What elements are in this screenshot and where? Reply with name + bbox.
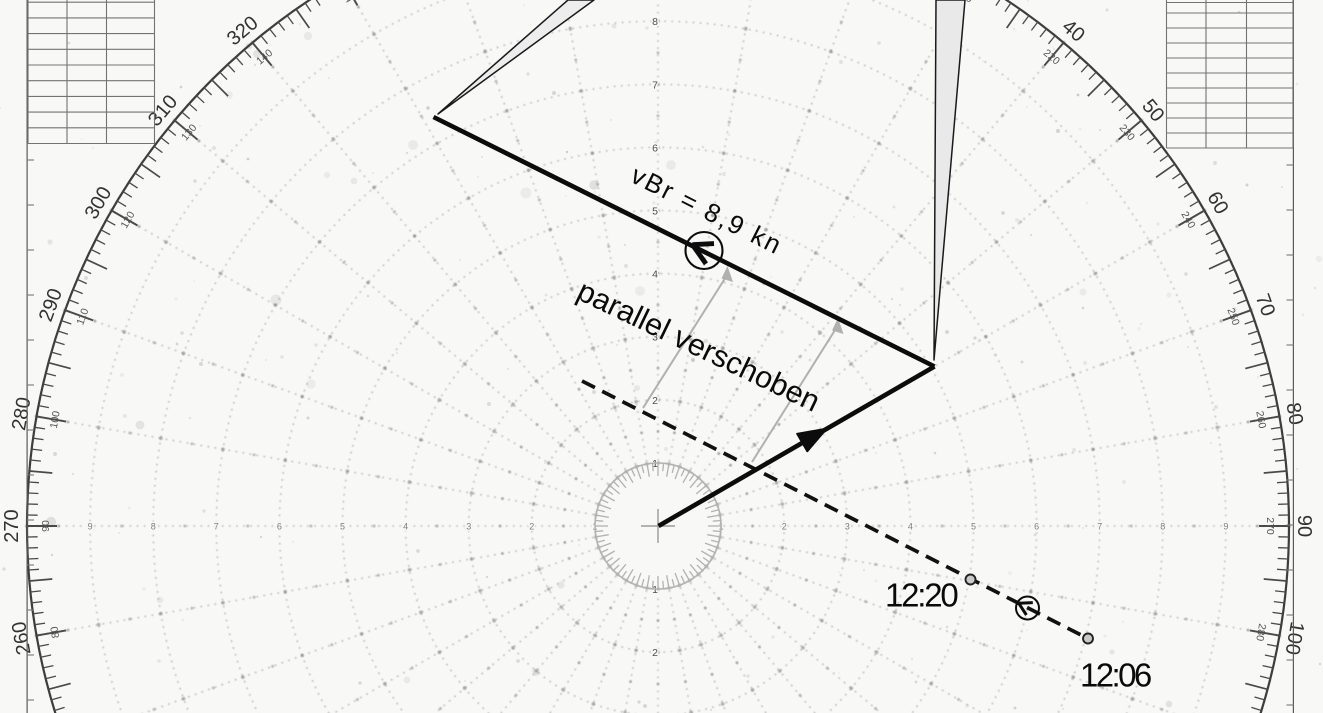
svg-text:8: 8: [1160, 522, 1165, 532]
svg-text:9: 9: [1223, 522, 1228, 532]
svg-text:2: 2: [782, 522, 787, 532]
svg-text:2: 2: [652, 395, 658, 407]
svg-text:5: 5: [652, 206, 658, 218]
svg-text:5: 5: [340, 522, 345, 532]
svg-text:5: 5: [971, 522, 976, 532]
svg-text:7: 7: [1097, 522, 1102, 532]
svg-text:2: 2: [652, 647, 658, 659]
svg-text:90: 90: [40, 520, 52, 532]
svg-text:8: 8: [151, 522, 156, 532]
svg-text:12:06: 12:06: [1080, 657, 1151, 694]
svg-text:3: 3: [466, 522, 471, 532]
svg-text:2: 2: [529, 522, 534, 532]
svg-text:80: 80: [48, 625, 62, 639]
svg-text:6: 6: [277, 522, 282, 532]
svg-text:90: 90: [1293, 515, 1315, 537]
svg-text:7: 7: [214, 522, 219, 532]
svg-text:4: 4: [908, 522, 913, 532]
svg-text:6: 6: [1034, 522, 1039, 532]
svg-text:4: 4: [403, 522, 408, 532]
svg-text:4: 4: [652, 269, 658, 281]
svg-text:3: 3: [845, 522, 850, 532]
svg-text:8: 8: [652, 16, 658, 28]
svg-text:7: 7: [652, 79, 658, 91]
svg-text:12:20: 12:20: [885, 577, 958, 614]
svg-text:270: 270: [1, 509, 23, 542]
svg-text:9: 9: [88, 522, 93, 532]
svg-text:6: 6: [652, 142, 658, 154]
svg-text:270: 270: [1264, 517, 1276, 535]
